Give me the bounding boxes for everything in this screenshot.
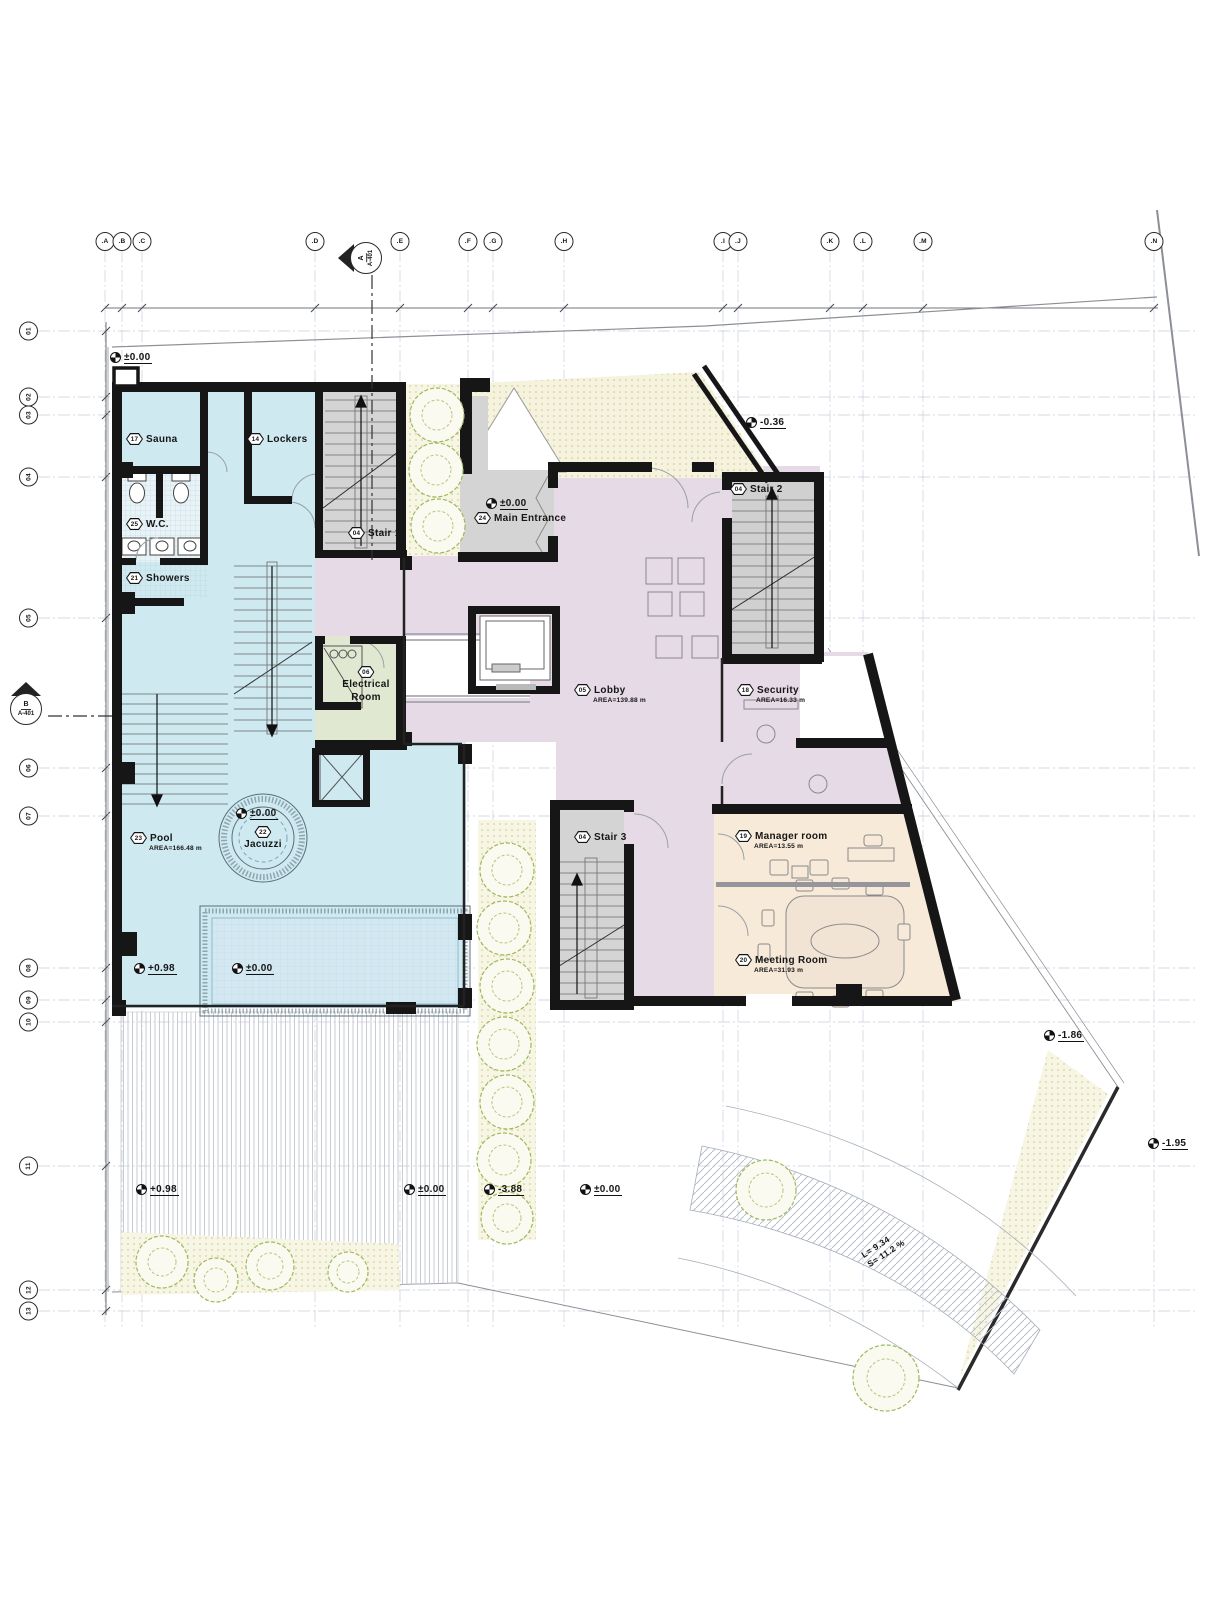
grid-column-bubble: .J (729, 232, 748, 251)
room-number-badge: 25 (126, 518, 143, 530)
grid-row-bubble: 04 (19, 468, 38, 487)
room-name: Security (757, 685, 799, 696)
room-label: 25 W.C. (126, 518, 169, 530)
room-label: 18 Security AREA=16.33 m (737, 684, 805, 704)
grid-row-bubble: 05 (19, 609, 38, 628)
room-area: AREA=139.88 m (593, 697, 646, 704)
elevation-marker: -0.36 (746, 417, 786, 429)
grid-row-bubble: 07 (19, 807, 38, 826)
grid-row-bubble: 12 (19, 1281, 38, 1300)
grid-row-bubble: 10 (19, 1013, 38, 1032)
elevation-marker: +0.98 (136, 1184, 179, 1196)
room-label: 06 Electrical Room (342, 666, 389, 703)
floor-plan-page: .A.B.C.D.E.F.G.H.I.J.K.L.M.N 01020304050… (0, 0, 1226, 1600)
elevation-marker: ±0.00 (486, 498, 528, 510)
room-number-badge: 17 (126, 433, 143, 445)
room-name: Electrical (342, 679, 389, 691)
grid-column-bubble: .M (914, 232, 933, 251)
elevation-value: +0.98 (150, 1184, 179, 1196)
floor-plan-drawing (0, 0, 1226, 1600)
elevation-marker: ±0.00 (110, 352, 152, 364)
room-label: 04 Stair 3 (574, 831, 627, 843)
elevation-marker: ±0.00 (580, 1184, 622, 1196)
room-name: Lockers (267, 434, 307, 445)
room-number-badge: 19 (735, 830, 752, 842)
room-label: 05 Lobby AREA=139.88 m (574, 684, 646, 704)
benchmark-icon (110, 352, 121, 363)
room-name: W.C. (146, 519, 169, 530)
benchmark-icon (404, 1184, 415, 1195)
room-area: AREA=166.48 m (149, 845, 202, 852)
room-number-badge: 23 (130, 832, 147, 844)
section-letter: B (21, 701, 30, 710)
room-area: AREA=31.93 m (754, 967, 828, 974)
room-area: AREA=16.33 m (756, 697, 805, 704)
grid-column-bubble: .E (391, 232, 410, 251)
elevation-value: -0.36 (760, 417, 786, 429)
benchmark-icon (136, 1184, 147, 1195)
room-number-badge: 24 (474, 512, 491, 524)
elevation-value: ±0.00 (124, 352, 152, 364)
room-name: Room (351, 692, 381, 704)
room-number-badge: 20 (735, 954, 752, 966)
benchmark-icon (1044, 1030, 1055, 1041)
elevation-marker: -1.95 (1148, 1138, 1188, 1150)
room-name: Lobby (594, 685, 626, 696)
room-label: 19 Manager room AREA=13.55 m (735, 830, 828, 850)
elevation-value: ±0.00 (500, 498, 528, 510)
benchmark-icon (134, 963, 145, 974)
room-label: 04 Stair 1 (348, 527, 401, 539)
room-number-badge: 04 (348, 527, 365, 539)
elevation-marker: +0.98 (134, 963, 177, 975)
grid-column-bubble: .F (459, 232, 478, 251)
benchmark-icon (1148, 1138, 1159, 1149)
elevation-marker: ±0.00 (236, 808, 278, 820)
elevation-value: -1.86 (1058, 1030, 1084, 1042)
elevation-value: ±0.00 (418, 1184, 446, 1196)
grid-row-bubble: 09 (19, 991, 38, 1010)
room-name: Meeting Room (755, 955, 828, 966)
room-number-badge: 05 (574, 684, 591, 696)
room-label: 20 Meeting Room AREA=31.93 m (735, 954, 828, 974)
room-number-badge: 06 (357, 666, 374, 678)
elevation-value: +0.98 (148, 963, 177, 975)
elevation-value: ±0.00 (594, 1184, 622, 1196)
benchmark-icon (580, 1184, 591, 1195)
room-label: 14 Lockers (247, 433, 307, 445)
section-sheet: A-401 (367, 250, 374, 266)
room-label: 21 Showers (126, 572, 190, 584)
room-label: 17 Sauna (126, 433, 178, 445)
grid-column-bubble: .L (854, 232, 873, 251)
room-label: 23 Pool AREA=166.48 m (130, 832, 202, 852)
room-number-badge: 04 (574, 831, 591, 843)
benchmark-icon (484, 1184, 495, 1195)
grid-column-bubble: .B (113, 232, 132, 251)
benchmark-icon (232, 963, 243, 974)
room-name: Sauna (146, 434, 178, 445)
room-label: 22 Jacuzzi (244, 826, 282, 851)
room-label: 24 Main Entrance (474, 512, 566, 524)
room-name: Stair 3 (594, 832, 627, 843)
room-number-badge: 18 (737, 684, 754, 696)
grid-row-bubble: 13 (19, 1302, 38, 1321)
elevation-value: ±0.00 (246, 963, 274, 975)
room-number-badge: 14 (247, 433, 264, 445)
grid-row-bubble: 01 (19, 322, 38, 341)
elevation-marker: -1.86 (1044, 1030, 1084, 1042)
grid-column-bubble: .G (484, 232, 503, 251)
elevation-value: ±0.00 (250, 808, 278, 820)
room-name: Showers (146, 573, 190, 584)
elevation-marker: ±0.00 (404, 1184, 446, 1196)
benchmark-icon (746, 417, 757, 428)
room-name: Manager room (755, 831, 828, 842)
room-number-badge: 22 (254, 826, 271, 838)
room-name: Stair 1 (368, 528, 401, 539)
section-marker-a: A A-401 (338, 242, 382, 274)
room-area: AREA=13.55 m (754, 843, 828, 850)
section-sheet: A-401 (18, 710, 34, 717)
grid-column-bubble: .H (555, 232, 574, 251)
grid-row-bubble: 11 (19, 1157, 38, 1176)
grid-row-bubble: 08 (19, 959, 38, 978)
room-name: Pool (150, 833, 173, 844)
grid-row-bubble: 06 (19, 759, 38, 778)
grid-column-bubble: .K (821, 232, 840, 251)
section-letter: A (358, 253, 367, 262)
section-marker-b: B A-401 (10, 682, 42, 725)
benchmark-icon (486, 498, 497, 509)
elevation-value: -3.88 (498, 1184, 524, 1196)
elevation-marker: -3.88 (484, 1184, 524, 1196)
grid-column-bubble: .C (133, 232, 152, 251)
room-name: Main Entrance (494, 513, 566, 524)
grid-row-bubble: 03 (19, 406, 38, 425)
elevation-value: -1.95 (1162, 1138, 1188, 1150)
benchmark-icon (236, 808, 247, 819)
room-label: 04 Stair 2 (730, 483, 783, 495)
grid-column-bubble: .D (306, 232, 325, 251)
room-number-badge: 04 (730, 483, 747, 495)
grid-row-bubble: 02 (19, 388, 38, 407)
room-number-badge: 21 (126, 572, 143, 584)
grid-column-bubble: .N (1145, 232, 1164, 251)
room-name: Jacuzzi (244, 839, 282, 851)
room-name: Stair 2 (750, 484, 783, 495)
elevation-marker: ±0.00 (232, 963, 274, 975)
